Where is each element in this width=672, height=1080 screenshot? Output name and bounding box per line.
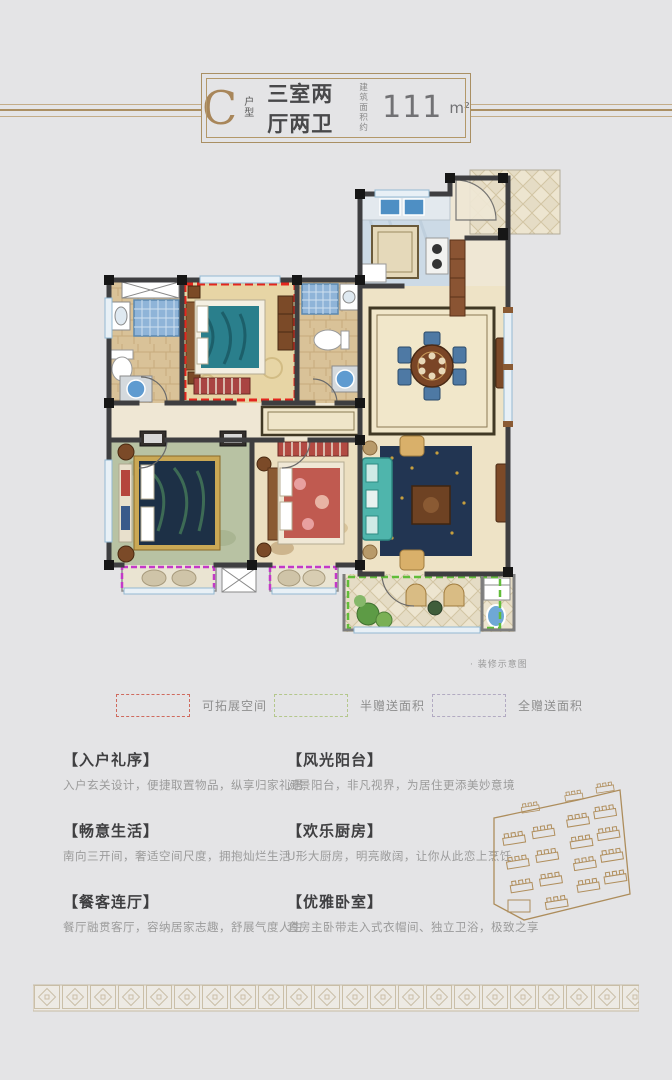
feature-title: 【畅意生活】	[63, 820, 287, 841]
feature-desc: 餐厅融贯客厅，容纳居家志趣，舒展气度人生	[63, 919, 287, 935]
siteplan-sketch	[478, 780, 636, 930]
floorplan-svg	[82, 168, 572, 660]
floorplan-legend: 可拓展空间 半赠送面积 全赠送面积	[116, 694, 583, 717]
band-svg	[33, 984, 639, 1012]
legend-swatch-half-gift	[274, 694, 348, 717]
plan-title: 三室两厅两卫	[267, 78, 348, 138]
feature-living: 【畅意生活】 南向三开间，奢适空间尺度，拥抱灿烂生活	[63, 820, 287, 864]
feature-desc: 南向三开间，奢适空间尺度，拥抱灿烂生活	[63, 848, 287, 864]
type-label: 户型	[244, 97, 254, 120]
decorative-border-band	[33, 984, 639, 1012]
area-unit: m²	[449, 99, 470, 117]
area-prefix: 建筑 面积约	[359, 83, 375, 134]
legend-swatch-full-gift	[432, 694, 506, 717]
title-box: C 户型 三室两厅两卫 建筑 面积约 111 m²	[201, 73, 471, 143]
legend-label: 半赠送面积	[360, 697, 425, 714]
area-prefix-line1: 建筑	[359, 83, 368, 103]
area-value: 111	[382, 93, 442, 123]
siteplan-svg	[478, 780, 636, 930]
legend-item-expandable: 可拓展空间	[116, 694, 267, 717]
type-letter: C	[202, 85, 237, 131]
legend-item-half-gift: 半赠送面积	[274, 694, 425, 717]
feature-title: 【餐客连厅】	[63, 891, 287, 912]
floorplan-drawing	[82, 168, 572, 660]
feature-title: 【入户礼序】	[63, 749, 287, 770]
legend-swatch-expandable	[116, 694, 190, 717]
legend-label: 全赠送面积	[518, 697, 583, 714]
feature-title: 【风光阳台】	[287, 749, 623, 770]
feature-dining: 【餐客连厅】 餐厅融贯客厅，容纳居家志趣，舒展气度人生	[63, 891, 287, 935]
legend-label: 可拓展空间	[202, 697, 267, 714]
area-prefix-line2: 面积约	[359, 103, 368, 133]
feature-desc: 入户玄关设计，便捷取置物品，纵享归家礼遇	[63, 777, 287, 793]
feature-entry: 【入户礼序】 入户玄关设计，便捷取置物品，纵享归家礼遇	[63, 749, 287, 793]
floorplan-flyer: C 户型 三室两厅两卫 建筑 面积约 111 m²	[0, 0, 672, 1080]
legend-item-full-gift: 全赠送面积	[432, 694, 583, 717]
floorplan-caption: · 装修示意图	[470, 657, 560, 670]
